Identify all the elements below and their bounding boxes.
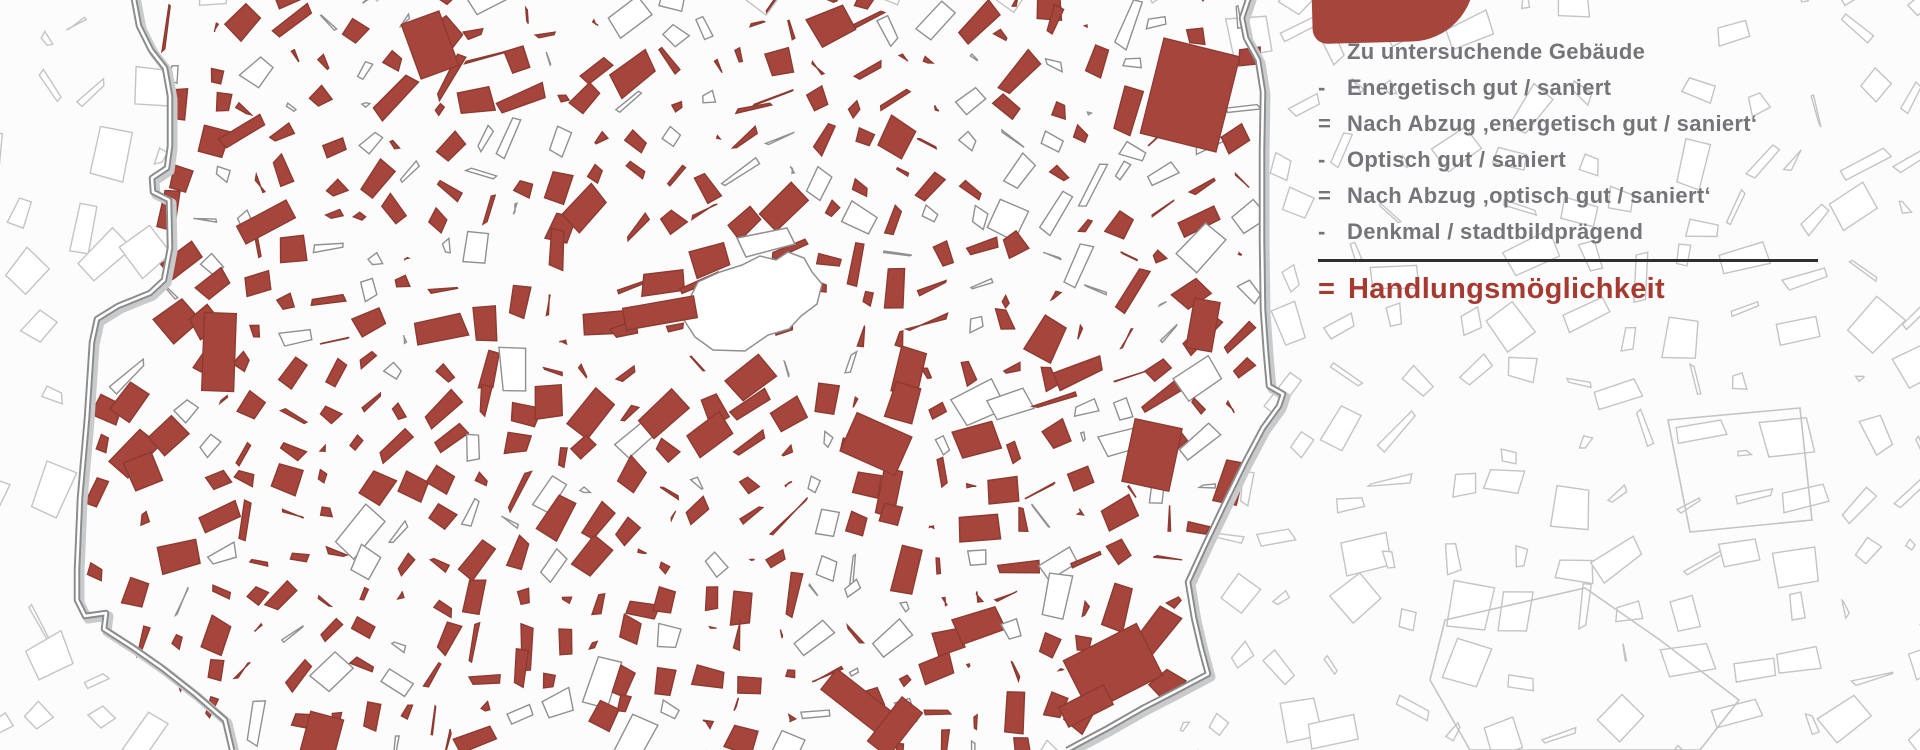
building-highlighted-red [463,580,486,614]
building-highlighted-red [318,470,326,483]
building-highlighted-red [1189,179,1215,195]
building-highlighted-red [735,48,742,62]
building-highlighted-red [1101,495,1138,531]
legend-item: -Energetisch gut / saniert [1318,70,1838,106]
building-highlighted-red [580,58,613,84]
building-outline [32,461,77,518]
building-highlighted-red [996,309,1015,329]
building-highlighted-red [504,432,531,453]
building-outline [90,126,132,182]
building-highlighted-red [686,496,708,524]
building-highlighted-red [281,443,307,461]
building-outline [987,199,1028,241]
building-highlighted-red [208,660,224,681]
building-highlighted-red [1014,738,1032,750]
building-highlighted-red [930,526,934,528]
legend: Zu untersuchende Gebäude-Energetisch gut… [1318,34,1838,312]
building-highlighted-red [929,403,946,420]
building-highlighted-red [1024,315,1066,363]
building-highlighted-red [277,293,294,309]
building-outline [403,335,406,343]
building-highlighted-red [352,617,375,638]
landmark-red-building [840,413,912,476]
legend-result-prefix: = [1318,273,1348,306]
building-highlighted-red [881,89,911,110]
building-outline [884,251,912,256]
building-outline [1221,574,1261,614]
building-highlighted-red [786,670,795,678]
building-highlighted-red [1042,419,1071,448]
building-highlighted-red [1116,269,1151,314]
building-highlighted-red [855,0,878,9]
building-outline [1759,418,1815,457]
building-outline [1848,296,1906,353]
building-outline [1893,148,1920,173]
building-outline [1237,280,1260,304]
building-outline [900,602,909,612]
building-highlighted-red [915,172,945,201]
building-outline [1081,432,1085,441]
legend-result-label: Handlungsmöglichkeit [1348,273,1665,306]
building-highlighted-red [326,210,343,219]
building-highlighted-red [967,484,977,488]
building-highlighted-red [1025,482,1055,499]
building-highlighted-red [942,598,947,606]
building-highlighted-red [1050,166,1069,181]
building-outline [1608,485,1627,502]
building-outline [1402,366,1433,397]
building-outline [496,118,520,159]
building-highlighted-red [88,563,102,581]
building-highlighted-red [760,182,809,231]
building-outline [282,626,304,643]
building-highlighted-red [786,572,803,617]
building-highlighted-red [853,397,858,407]
building-highlighted-red [481,702,490,711]
building-highlighted-red [1079,220,1093,232]
building-outline [462,499,479,526]
building-highlighted-red [770,498,807,535]
building-highlighted-red [383,51,402,71]
building-outline [1690,364,1701,394]
building-highlighted-red [1121,329,1133,348]
building-outline [1161,324,1178,342]
building-outline [1842,487,1876,523]
building-outline [41,31,53,45]
building-outline [1257,529,1296,546]
building-outline [1736,489,1773,504]
building-highlighted-red [515,649,529,688]
building-highlighted-red [562,597,571,603]
building-highlighted-red [1192,398,1205,414]
building-highlighted-red [236,103,252,115]
building-highlighted-red [1086,45,1109,78]
building-highlighted-red [1121,252,1138,261]
building-outline [1075,399,1099,416]
building-highlighted-red [436,364,454,382]
building-outline [550,126,572,157]
building-outline [77,79,104,107]
building-highlighted-red [672,102,682,112]
building-highlighted-red [398,553,414,575]
building-highlighted-red [426,466,454,495]
building-highlighted-red [510,286,531,319]
building-outline [1004,153,1036,188]
building-highlighted-red [853,179,868,196]
building-outline [784,361,789,377]
building-outline [1263,650,1294,685]
building-outline [703,90,716,102]
building-highlighted-red [952,607,1006,645]
building-highlighted-red [856,128,874,146]
building-outline [1676,420,1727,443]
building-outline [1856,376,1864,381]
building-highlighted-red [213,585,231,599]
building-highlighted-red [283,509,304,518]
building-highlighted-red [1033,392,1077,407]
city-wall [77,0,1286,750]
building-outline [1591,536,1642,583]
building-highlighted-red [291,50,298,62]
building-outline [381,669,413,697]
building-outline [239,57,273,88]
legend-item-label: Energetisch gut / saniert [1347,75,1611,101]
building-highlighted-red [1019,508,1028,532]
building-highlighted-red [1082,602,1089,617]
building-outline [1442,638,1491,686]
building-outline [970,54,977,61]
building-outline [1032,504,1050,528]
building-outline [193,218,216,222]
building-highlighted-red [429,208,447,233]
building-highlighted-red [582,502,615,539]
building-outline [1790,0,1809,2]
building-outline [1215,533,1244,543]
building-highlighted-red [373,75,418,121]
building-outline [200,0,231,5]
building-highlighted-red [1221,124,1249,154]
building-outline [84,674,109,689]
building-highlighted-red [353,212,365,220]
building-outline [662,127,680,147]
building-highlighted-red [994,29,1007,40]
building-highlighted-red [923,57,933,64]
building-outline [1861,68,1891,102]
building-highlighted-red [509,472,532,512]
building-outline [1734,658,1776,682]
building-outline [696,17,713,40]
building-highlighted-red [440,0,452,4]
building-highlighted-red [899,54,907,61]
building-highlighted-red [740,477,760,493]
building-highlighted-red [1002,296,1009,308]
building-highlighted-red [364,702,381,731]
building-outline [1508,675,1533,691]
building-highlighted-red [789,715,796,722]
building-highlighted-red [469,675,500,685]
building-outline [1662,317,1698,358]
building-highlighted-red [212,69,224,84]
building-outline [1084,285,1106,295]
building-outline [1909,720,1920,750]
building-highlighted-red [483,195,495,224]
legend-item-prefix: - [1318,147,1347,173]
building-outline [1282,265,1299,292]
building-outline [1041,131,1063,152]
building-outline [705,552,728,577]
building-outline [1180,722,1189,731]
building-outline [1270,153,1291,181]
building-outline [736,0,788,15]
legend-item-prefix: = [1318,111,1347,137]
building-highlighted-red [1052,102,1065,119]
building-outline [463,232,489,264]
building-outline [968,550,986,565]
building-outline [310,652,353,692]
building-highlighted-red [959,0,1000,44]
building-highlighted-red [1102,583,1132,632]
building-highlighted-red [780,630,782,638]
building-highlighted-red [320,446,325,452]
building-highlighted-red [952,421,1001,458]
building-highlighted-red [270,123,295,141]
building-highlighted-red [976,592,982,603]
legend-divider [1318,259,1818,262]
building-highlighted-red [157,539,200,574]
building-highlighted-red [694,174,721,204]
legend-item-prefix: - [1318,219,1347,245]
building-highlighted-red [661,210,688,234]
building-highlighted-red [653,587,675,613]
building-outline [1859,415,1892,455]
building-outline [1637,409,1654,446]
building-outline [970,317,983,333]
building-outline [1855,538,1881,564]
building-highlighted-red [771,396,808,431]
building-highlighted-red [255,237,261,257]
building-highlighted-red [595,132,608,144]
legend-result: = Handlungsmöglichkeit [1318,266,1838,312]
building-highlighted-red [1234,358,1256,378]
building-outline [1324,313,1354,339]
legend-item-prefix: - [1318,75,1347,101]
building-highlighted-red [967,237,998,254]
building-outline [1273,591,1289,605]
building-outline [1542,728,1576,743]
building-outline [1558,0,1589,17]
building-outline [1446,723,1460,741]
building-outline [368,253,383,265]
building-outline [507,705,533,725]
building-outline [1909,644,1920,679]
building-highlighted-red [974,715,977,730]
building-highlighted-red [1187,522,1210,534]
building-outline [1046,59,1063,72]
building-outline [1836,0,1871,5]
building-highlighted-red [592,594,605,615]
building-highlighted-red [430,559,449,573]
building-outline [1677,498,1700,513]
building-highlighted-red [559,340,566,344]
building-outline [1484,470,1525,494]
figure-ground-map-page: Zu untersuchende Gebäude-Energetisch gut… [0,0,1920,750]
building-highlighted-red [321,507,333,517]
building-highlighted-red [854,61,881,79]
building-outline [842,201,878,234]
building-outline [513,203,517,214]
building-highlighted-red [617,695,631,712]
building-highlighted-red [206,471,232,490]
building-highlighted-red [891,545,922,594]
building-highlighted-red [667,323,684,332]
building-outline [247,701,265,746]
building-highlighted-red [1187,28,1205,44]
building-outline [1123,58,1141,67]
building-highlighted-red [162,5,170,52]
building-outline [1460,354,1493,385]
building-highlighted-red [750,21,765,26]
building-outline [972,741,976,750]
building-outline [1320,406,1361,451]
building-highlighted-red [1238,253,1242,255]
building-highlighted-red [692,204,717,219]
building-highlighted-red [734,699,738,711]
building-highlighted-red [738,677,761,694]
building-highlighted-red [544,673,556,688]
building-highlighted-red [360,352,376,369]
building-highlighted-red [526,8,529,24]
building-highlighted-red [265,581,297,610]
building-highlighted-red [473,306,497,341]
building-outline [1330,573,1381,623]
building-highlighted-red [668,165,686,186]
building-highlighted-red [559,448,567,468]
building-outline [1660,644,1715,677]
building-highlighted-red [1068,466,1094,491]
building-highlighted-red [638,549,647,553]
building-highlighted-red [273,154,293,186]
building-outline [358,62,373,79]
legend-item-label: Nach Abzug ‚optisch gut / saniert‘ [1347,183,1711,209]
building-highlighted-red [717,136,720,139]
building-outline [1173,356,1221,402]
building-outline [1209,714,1228,736]
building-highlighted-red [352,308,386,337]
building-highlighted-red [660,487,678,499]
building-highlighted-red [961,362,976,387]
building-outline [443,238,451,253]
building-outline [1790,592,1805,620]
building-outline [1324,656,1337,674]
building-highlighted-red [625,130,647,153]
building-highlighted-red [321,406,342,423]
building-highlighted-red [247,587,268,605]
building-highlighted-red [1152,200,1174,216]
building-outline [1892,346,1920,388]
building-highlighted-red [1142,380,1182,412]
building-outline [1027,740,1064,750]
building-outline [29,605,50,641]
building-highlighted-red [463,29,483,40]
building-highlighted-red [1106,539,1131,564]
building-highlighted-red [343,19,370,43]
building-outline [1079,164,1108,206]
building-highlighted-red [1153,250,1166,263]
building-highlighted-red [398,592,404,599]
building-outline [922,205,938,222]
building-highlighted-red [435,424,469,453]
building-highlighted-red [281,409,307,424]
building-highlighted-red [730,591,752,625]
building-outline [42,386,63,404]
building-outline [216,166,230,182]
legend-item: Zu untersuchende Gebäude [1318,34,1838,70]
building-outline [1498,592,1533,631]
building-outline [808,476,820,492]
building-highlighted-red [220,396,228,404]
building-outline [1330,363,1362,386]
building-outline [478,125,493,151]
building-highlighted-red [917,139,936,149]
building-highlighted-red [671,511,676,520]
building-outline [363,0,383,3]
building-highlighted-red [290,553,309,561]
building-highlighted-red [1114,86,1143,136]
building-highlighted-red [1235,174,1249,188]
building-outline [1623,644,1627,661]
building-highlighted-red [549,228,564,270]
building-highlighted-red [960,181,981,200]
building-outline [466,168,497,179]
building-highlighted-red [847,243,864,286]
building-highlighted-red [122,578,149,607]
building-outline [502,516,519,528]
building-outline [824,431,833,447]
building-outline [1842,600,1849,618]
building-outline [1594,379,1642,410]
building-highlighted-red [321,619,343,642]
building-highlighted-red [435,104,444,116]
landmark-red-building [202,312,237,391]
building-highlighted-red [878,115,916,159]
building-outline [1501,449,1516,464]
legend-item-prefix: = [1318,183,1347,209]
building-highlighted-red [846,511,867,535]
building-outline [1001,619,1021,639]
building-outline [541,549,567,582]
building-outline [1621,328,1635,351]
building-highlighted-red [817,254,841,266]
building-outline [845,579,861,597]
building-highlighted-red [1007,441,1021,463]
building-outline [1850,260,1877,281]
building-highlighted-red [1166,597,1181,608]
building-highlighted-red [318,596,331,606]
building-outline [1159,302,1166,306]
building-outline [0,475,10,527]
building-outline [1040,191,1073,235]
building-outline [661,700,679,719]
legend-item-label: Nach Abzug ‚energetisch gut / saniert‘ [1347,111,1757,137]
building-highlighted-red [1074,125,1088,142]
building-outline [916,1,955,40]
building-highlighted-red [401,705,412,719]
building-outline [392,642,406,653]
building-highlighted-red [753,90,793,106]
building-outline [608,0,652,38]
building-outline [1119,142,1146,161]
building-highlighted-red [815,383,839,414]
